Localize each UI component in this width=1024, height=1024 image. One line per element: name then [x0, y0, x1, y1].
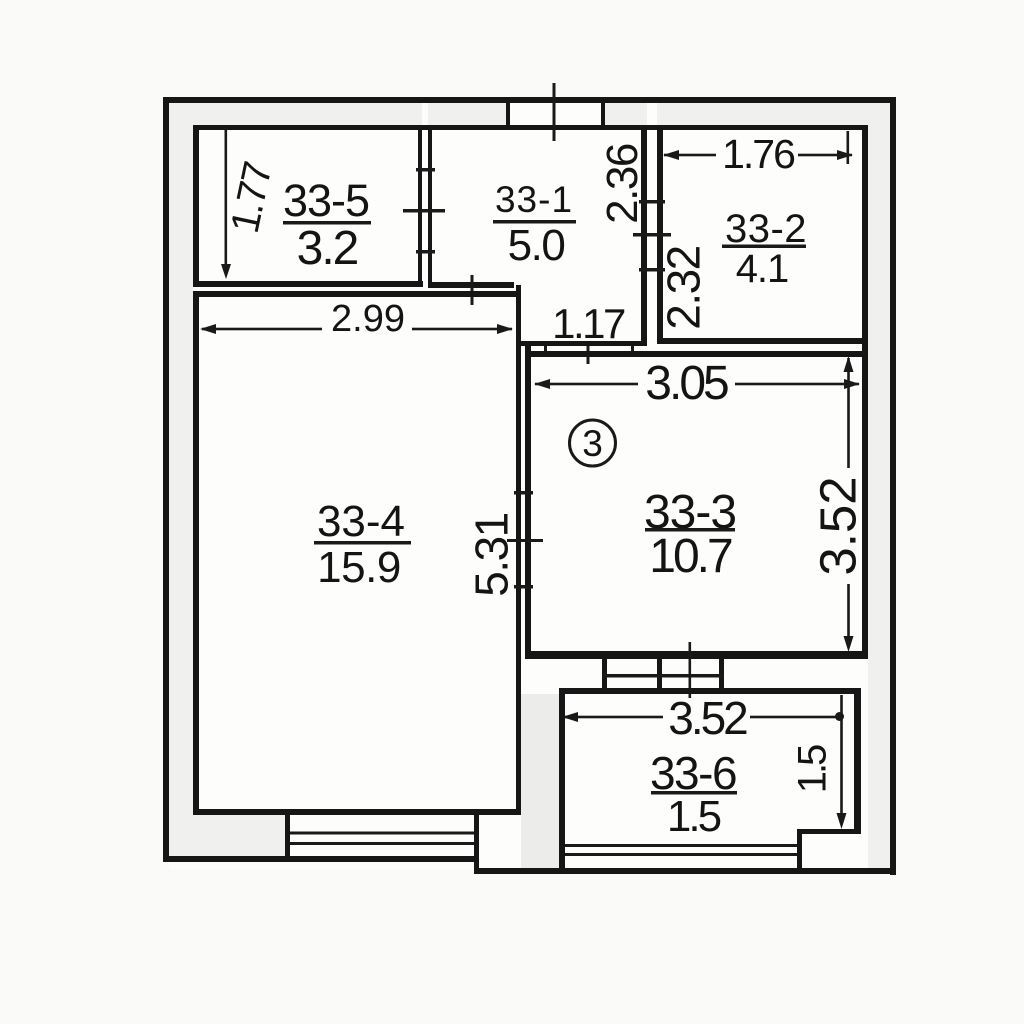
svg-text:1.76: 1.76 — [722, 131, 794, 177]
svg-text:15.9: 15.9 — [317, 543, 401, 592]
svg-text:5.0: 5.0 — [508, 221, 565, 270]
svg-text:2.36: 2.36 — [598, 144, 647, 224]
svg-text:2.99: 2.99 — [331, 298, 405, 340]
svg-text:1.17: 1.17 — [552, 300, 625, 347]
svg-text:1.5: 1.5 — [791, 745, 835, 793]
svg-text:10.7: 10.7 — [649, 530, 732, 583]
svg-text:3.52: 3.52 — [668, 692, 747, 744]
svg-text:5.31: 5.31 — [466, 513, 518, 597]
svg-text:3: 3 — [582, 423, 603, 464]
svg-text:33-5: 33-5 — [283, 175, 369, 226]
svg-text:2.32: 2.32 — [658, 246, 710, 330]
svg-text:3.05: 3.05 — [645, 357, 728, 410]
svg-text:3.52: 3.52 — [809, 476, 866, 575]
svg-text:33-1: 33-1 — [495, 179, 573, 220]
svg-text:1.5: 1.5 — [667, 792, 721, 841]
svg-text:33-2: 33-2 — [725, 207, 807, 251]
svg-text:4.1: 4.1 — [736, 247, 789, 291]
svg-text:33-4: 33-4 — [317, 497, 405, 546]
svg-text:3.2: 3.2 — [297, 222, 358, 275]
